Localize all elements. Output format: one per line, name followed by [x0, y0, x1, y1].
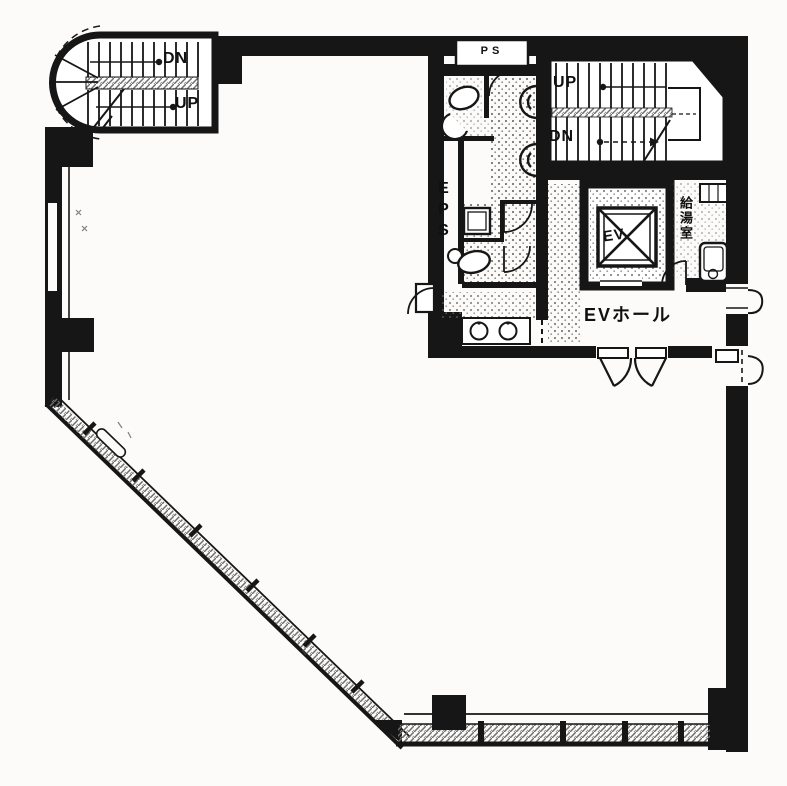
floor-plan-drawing: [0, 0, 787, 786]
dn-marker-dot: [156, 59, 162, 65]
stair-right-dn-label: DN: [549, 128, 574, 146]
restroom-corridor-floor: [490, 76, 536, 204]
exterior-hook: [748, 290, 762, 313]
ev-hall-double-door: [598, 348, 666, 386]
restroom-corner-block: [428, 312, 462, 358]
corner-column-br: [708, 688, 748, 750]
stair-right-up-label: UP: [553, 74, 577, 92]
kitchenette-label: 給湯室: [676, 196, 695, 241]
eps-shaft-label: EPS: [434, 180, 452, 243]
stair-left-up-label: UP: [175, 95, 199, 113]
restroom-right-wall: [536, 56, 548, 320]
ev-hall-strip: [548, 184, 582, 344]
diagonal-window-wall: [46, 396, 410, 748]
elevator-hall-label: EVホール: [584, 301, 672, 327]
pipe-shaft-label: PS: [456, 45, 528, 57]
scan-specks: [76, 210, 306, 655]
elevator-label: EV: [602, 226, 626, 246]
exterior-hook: [748, 356, 763, 384]
floor-plan: DN UP UP DN PS EPS EV 給湯室 EVホール: [0, 0, 787, 786]
stair-top-left: [51, 26, 215, 139]
column-bottom: [432, 695, 466, 730]
stair-left-dn-label: DN: [163, 50, 188, 68]
left-wall-stub: [50, 127, 93, 167]
washbasin: [500, 323, 517, 340]
dn-marker-dot: [597, 139, 603, 145]
up-marker-dot: [600, 84, 606, 90]
hall-bottom-wall-right: [668, 346, 712, 358]
column-left: [62, 318, 94, 352]
washbasin: [471, 323, 488, 340]
